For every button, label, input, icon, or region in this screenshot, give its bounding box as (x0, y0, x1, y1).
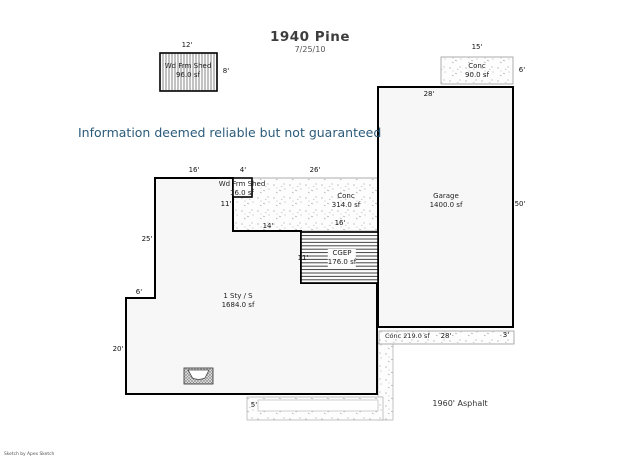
dim-patio-bottom: 14' (263, 222, 274, 230)
dim-patio-left: 11' (221, 200, 232, 208)
page-title: 1940 Pine (270, 29, 350, 45)
conc-pad-area: 90.0 sf (465, 71, 489, 80)
footer-credit: Sketch by Apex Sketch (4, 451, 54, 456)
conc-pad-label: Conc 90.0 sf (465, 62, 489, 80)
dim-conc-pad-width: 15' (472, 43, 483, 51)
dim-cgep-height: 11' (298, 254, 309, 262)
garage-label: Garage 1400.0 sf (430, 192, 463, 210)
asphalt-label: 1960' Asphalt (432, 399, 487, 408)
garage-area: 1400.0 sf (430, 201, 463, 210)
house-name: 1 Sty / S (222, 292, 255, 301)
dim-conc-strip-height: 3' (503, 331, 509, 339)
shed-top-name: Wd Frm Shed (165, 62, 212, 71)
dim-top-seg2: 4' (240, 166, 246, 174)
page-date: 7/25/10 (295, 45, 326, 54)
dim-house-left-upper: 25' (142, 235, 153, 243)
dim-house-step: 6' (136, 288, 142, 296)
dim-top-seg1: 16' (189, 166, 200, 174)
shed-top-area: 96.0 sf (165, 71, 212, 80)
house-area: 1684.0 sf (222, 301, 255, 310)
cgep-area: 176.0 sf (328, 258, 356, 267)
dim-house-left-lower: 20' (113, 345, 124, 353)
cgep-label: CGEP 176.0 sf (328, 249, 356, 267)
dim-garage-width: 28' (424, 90, 435, 98)
conc-strip-label: Conc 219.0 sf (385, 332, 430, 340)
garage-name: Garage (430, 192, 463, 201)
shed-mid-label: Wd Frm Shed 16.0 sf (219, 180, 266, 198)
sketch-canvas: 1940 Pine 7/25/10 Information deemed rel… (0, 0, 640, 469)
asphalt-inner-area (258, 400, 378, 411)
dim-conc-pad-height: 6' (519, 66, 525, 74)
cgep-name: CGEP (328, 249, 356, 258)
shed-mid-area: 16.0 sf (219, 189, 266, 198)
conc-pad-name: Conc (465, 62, 489, 71)
house-label: 1 Sty / S 1684.0 sf (222, 292, 255, 310)
shed-mid-name: Wd Frm Shed (219, 180, 266, 189)
dim-shed-top-width: 12' (182, 41, 193, 49)
patio-label: Conc 314.0 sf (332, 192, 360, 210)
shed-top-label: Wd Frm Shed 96.0 sf (165, 62, 212, 80)
dim-shed-top-height: 8' (223, 67, 229, 75)
disclaimer-text: Information deemed reliable but not guar… (78, 125, 381, 140)
dim-asphalt-offset: 5' (251, 401, 257, 409)
dim-top-seg3: 26' (310, 166, 321, 174)
patio-area: 314.0 sf (332, 201, 360, 210)
dim-patio-bottom-right: 16' (335, 219, 346, 227)
patio-name: Conc (332, 192, 360, 201)
dim-conc-strip-width: 28' (441, 332, 452, 340)
floorplan-drawing (0, 0, 640, 469)
dim-garage-height: 50' (515, 200, 526, 208)
